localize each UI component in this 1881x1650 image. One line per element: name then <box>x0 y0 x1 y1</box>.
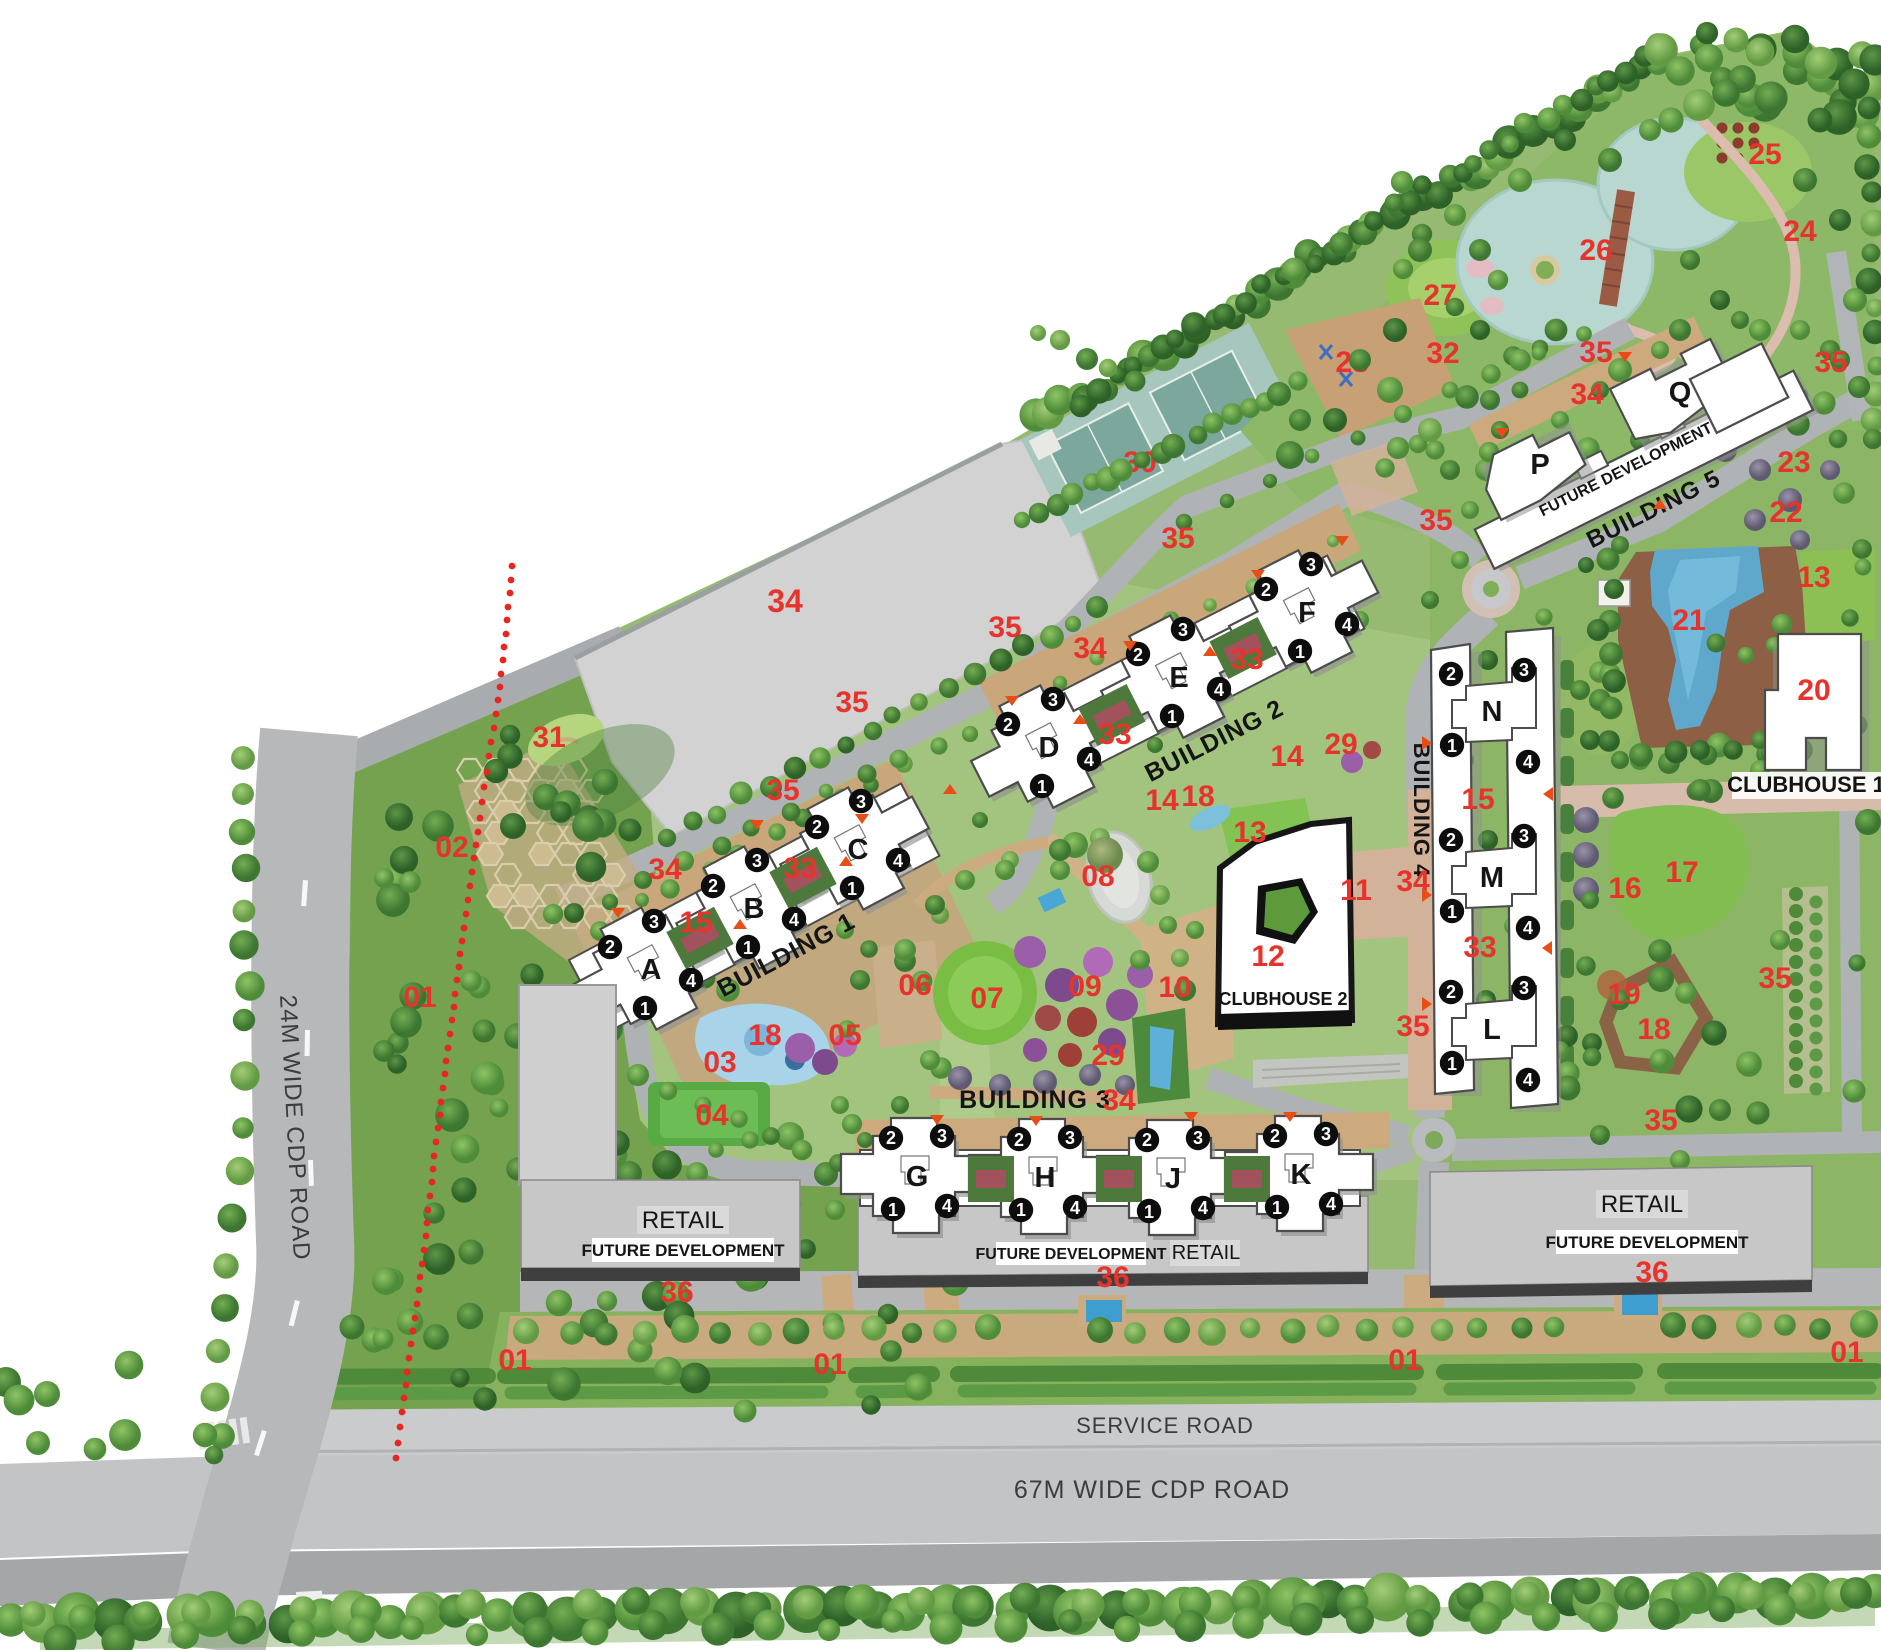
svg-text:FUTURE DEVELOPMENT: FUTURE DEVELOPMENT <box>1545 1233 1749 1252</box>
svg-text:RETAIL: RETAIL <box>1172 1242 1241 1264</box>
svg-text:18: 18 <box>1181 780 1214 813</box>
svg-text:3: 3 <box>752 851 762 871</box>
svg-text:24: 24 <box>1783 215 1817 248</box>
svg-text:14: 14 <box>1270 740 1304 773</box>
svg-text:E: E <box>1169 662 1188 694</box>
svg-text:SERVICE ROAD: SERVICE ROAD <box>1076 1413 1254 1438</box>
svg-text:05: 05 <box>828 1019 861 1052</box>
svg-text:1: 1 <box>743 938 753 958</box>
svg-text:17: 17 <box>1665 856 1698 889</box>
svg-text:RETAIL: RETAIL <box>642 1207 724 1234</box>
svg-text:4: 4 <box>1326 1194 1336 1214</box>
svg-text:A: A <box>641 954 662 986</box>
svg-text:06: 06 <box>898 969 931 1002</box>
svg-text:34: 34 <box>648 853 682 886</box>
svg-text:01: 01 <box>1830 1336 1863 1369</box>
svg-text:1: 1 <box>1167 707 1177 727</box>
svg-text:18: 18 <box>748 1019 781 1052</box>
svg-text:15: 15 <box>679 906 712 939</box>
svg-text:1: 1 <box>1037 777 1047 797</box>
svg-text:67M WIDE CDP ROAD: 67M WIDE CDP ROAD <box>1014 1476 1290 1504</box>
svg-text:20: 20 <box>1797 674 1830 707</box>
svg-text:3: 3 <box>1519 978 1529 998</box>
svg-text:3: 3 <box>1065 1128 1075 1148</box>
svg-text:36: 36 <box>1096 1261 1129 1294</box>
svg-text:35: 35 <box>1758 962 1791 995</box>
svg-text:4: 4 <box>893 851 903 871</box>
svg-text:4: 4 <box>1523 752 1533 772</box>
svg-text:2: 2 <box>1142 1130 1152 1150</box>
svg-text:BUILDING 3: BUILDING 3 <box>959 1086 1111 1114</box>
svg-text:4: 4 <box>789 910 799 930</box>
svg-text:N: N <box>1482 696 1503 728</box>
svg-text:3: 3 <box>1306 555 1316 575</box>
svg-text:2: 2 <box>1446 664 1456 684</box>
svg-text:34: 34 <box>1073 632 1107 665</box>
svg-text:1: 1 <box>640 999 650 1019</box>
svg-text:RETAIL: RETAIL <box>1601 1191 1683 1218</box>
svg-text:1: 1 <box>1272 1198 1282 1218</box>
svg-text:14: 14 <box>1145 784 1179 817</box>
svg-text:4: 4 <box>686 971 696 991</box>
svg-text:01: 01 <box>403 981 436 1014</box>
svg-text:J: J <box>1165 1163 1181 1195</box>
svg-text:13: 13 <box>1233 816 1266 849</box>
svg-text:CLUBHOUSE 2: CLUBHOUSE 2 <box>1218 989 1347 1009</box>
svg-text:34: 34 <box>767 583 803 619</box>
svg-text:4: 4 <box>1198 1198 1208 1218</box>
svg-text:3: 3 <box>1178 620 1188 640</box>
svg-text:25: 25 <box>1748 138 1781 171</box>
svg-text:4: 4 <box>1214 680 1224 700</box>
svg-text:01: 01 <box>1388 1344 1421 1377</box>
svg-text:33: 33 <box>1230 643 1263 676</box>
svg-text:1: 1 <box>1144 1202 1154 1222</box>
svg-text:C: C <box>848 834 869 866</box>
svg-text:FUTURE DEVELOPMENT: FUTURE DEVELOPMENT <box>975 1246 1166 1263</box>
svg-text:1: 1 <box>847 879 857 899</box>
svg-text:P: P <box>1530 449 1549 481</box>
svg-text:33: 33 <box>1463 931 1496 964</box>
svg-text:1: 1 <box>1295 642 1305 662</box>
svg-text:33: 33 <box>1098 718 1131 751</box>
svg-text:L: L <box>1483 1014 1501 1046</box>
svg-text:33: 33 <box>783 852 816 885</box>
svg-text:H: H <box>1035 1162 1056 1194</box>
svg-text:2: 2 <box>605 937 615 957</box>
svg-text:4: 4 <box>1342 615 1352 635</box>
svg-text:12: 12 <box>1251 940 1284 973</box>
svg-text:15: 15 <box>1461 783 1494 816</box>
svg-text:4: 4 <box>1084 750 1094 770</box>
svg-text:09: 09 <box>1068 970 1101 1003</box>
svg-text:G: G <box>906 1161 929 1193</box>
svg-text:3: 3 <box>1321 1124 1331 1144</box>
svg-text:08: 08 <box>1081 860 1114 893</box>
svg-text:01: 01 <box>813 1348 846 1381</box>
svg-text:2: 2 <box>1133 645 1143 665</box>
svg-text:2: 2 <box>812 817 822 837</box>
svg-text:1: 1 <box>888 1200 898 1220</box>
svg-text:19: 19 <box>1607 978 1640 1011</box>
svg-text:10: 10 <box>1158 971 1191 1004</box>
svg-text:K: K <box>1291 1159 1312 1191</box>
svg-text:3: 3 <box>649 912 659 932</box>
svg-text:FUTURE DEVELOPMENT: FUTURE DEVELOPMENT <box>581 1241 785 1260</box>
svg-text:35: 35 <box>1814 346 1847 379</box>
svg-text:1: 1 <box>1016 1200 1026 1220</box>
svg-text:1: 1 <box>1447 736 1457 756</box>
svg-text:16: 16 <box>1608 872 1641 905</box>
svg-text:35: 35 <box>1579 336 1612 369</box>
svg-text:1: 1 <box>1447 1054 1457 1074</box>
svg-text:2: 2 <box>708 876 718 896</box>
svg-text:26: 26 <box>1579 234 1612 267</box>
svg-text:23: 23 <box>1777 446 1810 479</box>
svg-text:D: D <box>1039 732 1060 764</box>
svg-text:31: 31 <box>532 721 565 754</box>
svg-text:18: 18 <box>1637 1013 1670 1046</box>
svg-text:CLUBHOUSE 1: CLUBHOUSE 1 <box>1727 772 1881 797</box>
svg-text:11: 11 <box>1340 874 1372 907</box>
svg-text:21: 21 <box>1672 604 1705 637</box>
svg-text:2: 2 <box>1446 982 1456 1002</box>
svg-text:2: 2 <box>886 1128 896 1148</box>
svg-text:2: 2 <box>1446 830 1456 850</box>
svg-text:35: 35 <box>1644 1104 1677 1137</box>
svg-text:1: 1 <box>1447 902 1457 922</box>
svg-text:F: F <box>1298 597 1316 629</box>
svg-text:3: 3 <box>1193 1128 1203 1148</box>
svg-text:03: 03 <box>703 1046 736 1079</box>
svg-text:29: 29 <box>1091 1039 1124 1072</box>
svg-text:2: 2 <box>1014 1130 1024 1150</box>
svg-text:Q: Q <box>1669 377 1692 409</box>
svg-text:07: 07 <box>970 982 1003 1015</box>
svg-text:35: 35 <box>766 774 799 807</box>
svg-text:01: 01 <box>498 1344 531 1377</box>
svg-text:35: 35 <box>1396 1010 1429 1043</box>
svg-text:35: 35 <box>835 686 868 719</box>
svg-text:3: 3 <box>856 792 866 812</box>
svg-text:3: 3 <box>1519 660 1529 680</box>
svg-text:BUILDING 4: BUILDING 4 <box>1409 743 1434 878</box>
svg-text:3: 3 <box>937 1126 947 1146</box>
svg-text:4: 4 <box>1070 1198 1080 1218</box>
svg-text:2: 2 <box>1003 715 1013 735</box>
svg-text:35: 35 <box>1161 522 1194 555</box>
svg-text:35: 35 <box>988 611 1021 644</box>
svg-text:2: 2 <box>1270 1126 1280 1146</box>
svg-text:4: 4 <box>942 1196 952 1216</box>
svg-text:36: 36 <box>1635 1256 1668 1289</box>
svg-text:29: 29 <box>1324 728 1357 761</box>
svg-text:B: B <box>744 893 765 925</box>
svg-text:34: 34 <box>1570 378 1604 411</box>
svg-text:22: 22 <box>1769 496 1802 529</box>
svg-text:3: 3 <box>1519 826 1529 846</box>
svg-text:36: 36 <box>660 1276 693 1309</box>
svg-text:3: 3 <box>1048 690 1058 710</box>
svg-text:13: 13 <box>1797 561 1830 594</box>
svg-text:4: 4 <box>1523 1070 1533 1090</box>
svg-text:2: 2 <box>1261 580 1271 600</box>
svg-text:04: 04 <box>695 1099 729 1132</box>
svg-text:M: M <box>1480 862 1504 894</box>
svg-text:4: 4 <box>1523 918 1533 938</box>
svg-text:35: 35 <box>1419 504 1452 537</box>
svg-text:02: 02 <box>435 831 468 864</box>
svg-text:34: 34 <box>1102 1084 1136 1117</box>
svg-text:32: 32 <box>1426 337 1459 370</box>
